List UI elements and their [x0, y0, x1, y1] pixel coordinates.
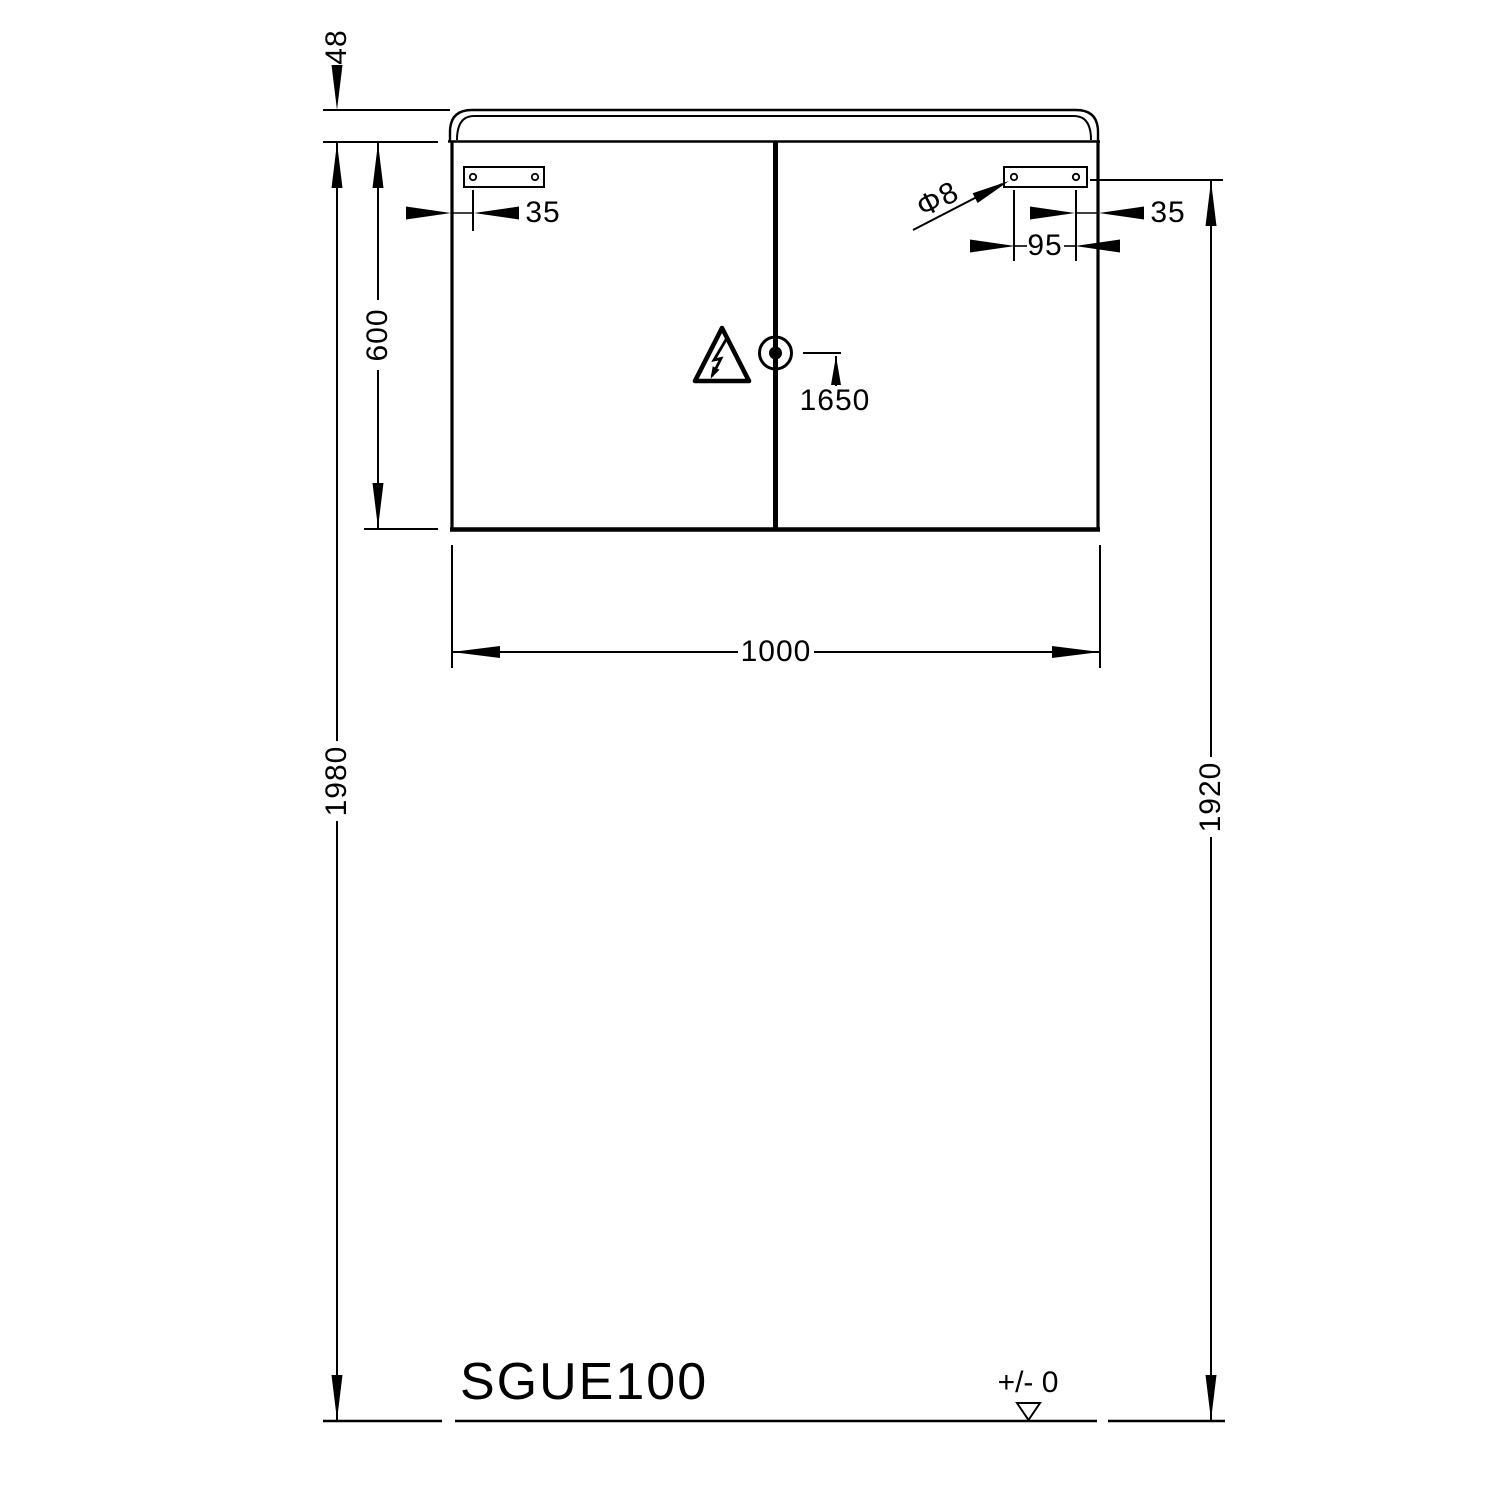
dim-label-overall-height-right: 1920 — [1196, 727, 1226, 867]
dim-1650-linework — [803, 353, 841, 386]
dim-35-right-linework — [1030, 207, 1144, 220]
dim-35-left-linework — [406, 190, 519, 231]
dim-label-lid-height: 48 — [322, 0, 352, 117]
dim-label-lock-height: 1650 — [795, 386, 875, 416]
technical-drawing-canvas: 48 600 1980 1920 1000 1650 35 35 95 Φ8 S… — [0, 0, 1500, 1500]
high-voltage-warning-icon — [695, 328, 749, 381]
dim-label-hinge-offset-right: 35 — [1148, 198, 1188, 228]
hinge-hole-icon — [1011, 174, 1017, 180]
cabinet-lid — [448, 110, 1100, 142]
dim-label-hinge-hole-spacing: 95 — [1025, 231, 1065, 261]
hinge-plate-right — [1004, 167, 1087, 187]
dim-label-width: 1000 — [726, 637, 826, 667]
hinge-hole-icon — [1073, 174, 1079, 180]
level-datum-label: +/- 0 — [968, 1368, 1088, 1398]
dim-label-hinge-offset-left: 35 — [523, 198, 563, 228]
hinge-hole-icon — [532, 174, 538, 180]
model-number-label: SGUE100 — [460, 1356, 708, 1408]
level-datum-icon — [1017, 1403, 1040, 1420]
dim-label-door-height: 600 — [363, 265, 393, 405]
dim-label-overall-height-left: 1980 — [322, 711, 352, 851]
hinge-plate-left — [464, 167, 544, 187]
hinge-hole-icon — [470, 174, 476, 180]
drawing-linework — [0, 0, 1500, 1500]
